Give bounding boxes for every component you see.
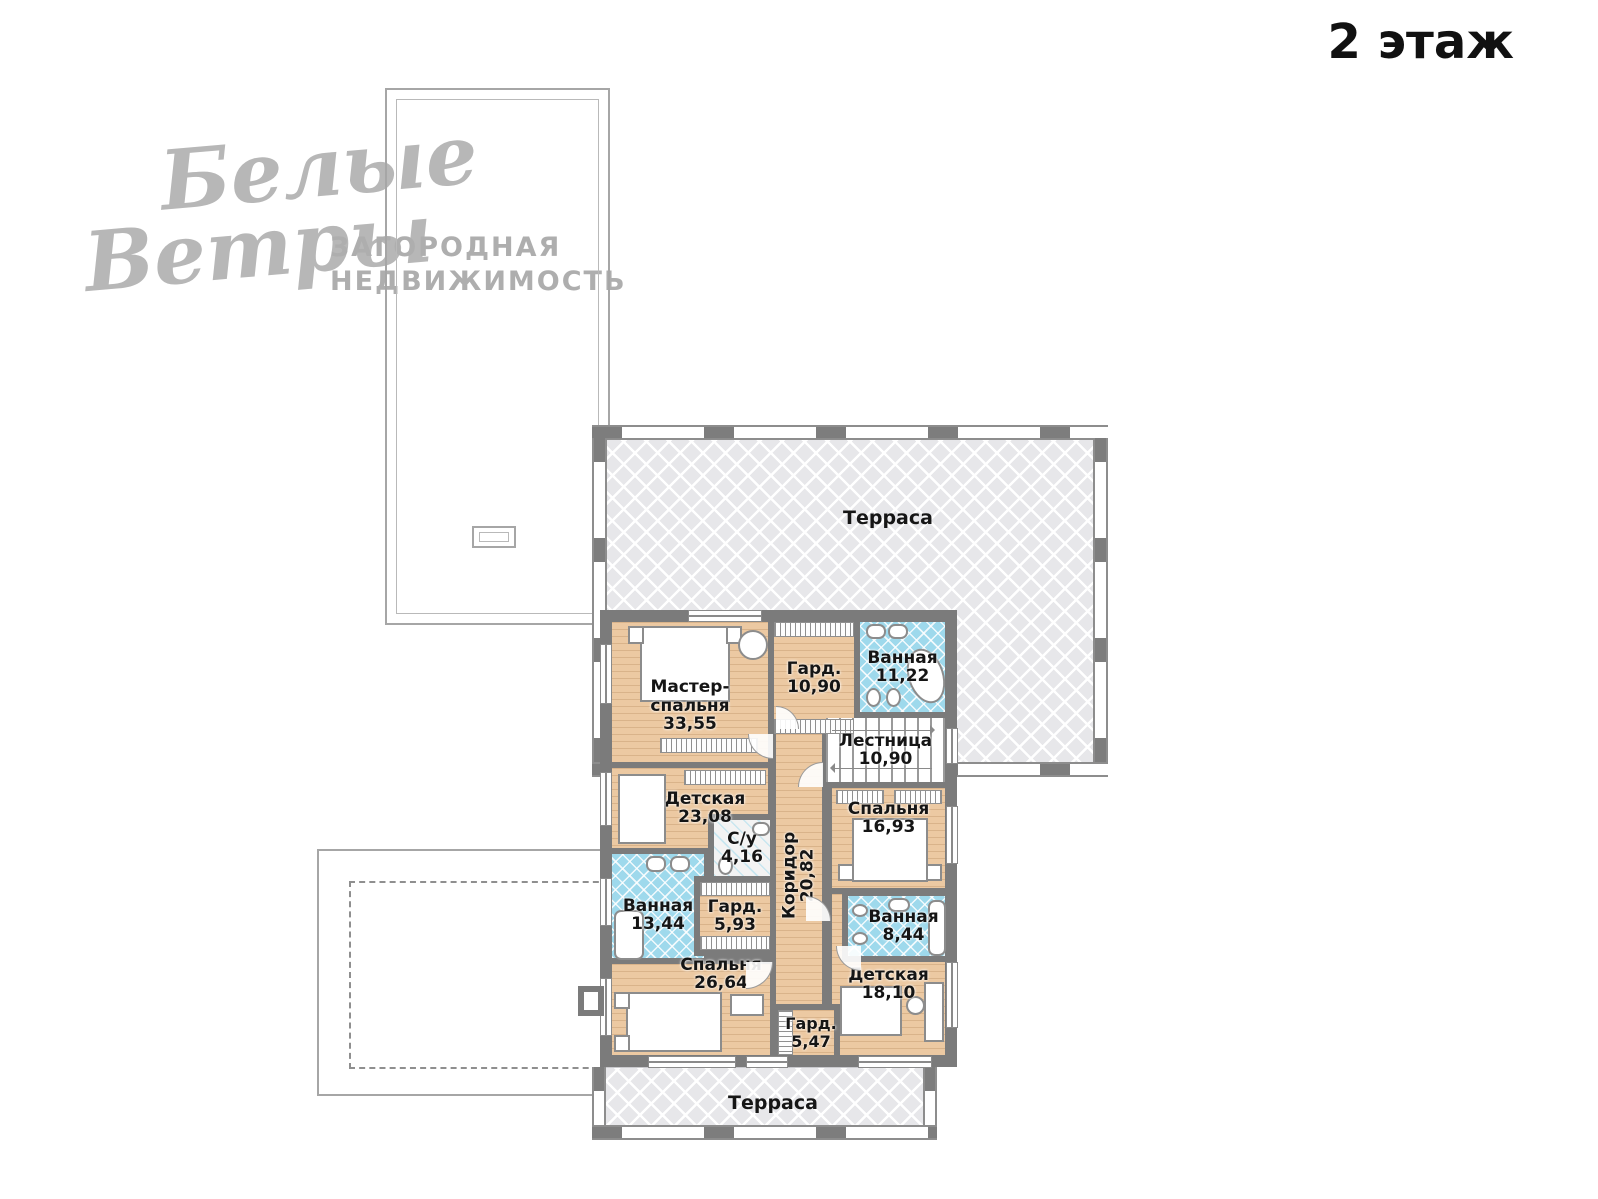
room-bathroom-3: Ванная 8,44	[848, 896, 945, 956]
room-bathroom-2: Ванная 13,44	[612, 854, 704, 958]
room-label: С/у 4,16	[721, 830, 763, 867]
bed-symbol	[618, 774, 666, 844]
terrace-top-railing-east	[1093, 438, 1108, 764]
roof-outline-upper	[385, 88, 610, 625]
wardrobe-shelves-symbol	[700, 882, 770, 896]
room-wc: С/у 4,16	[714, 820, 770, 876]
wardrobe-shelves-symbol	[774, 622, 854, 637]
room-label: Детская 23,08	[665, 790, 746, 827]
room-wardrobe-3: Гард. 5,47	[778, 1010, 834, 1055]
window	[600, 644, 612, 704]
room-bedroom-1: Спальня 16,93	[832, 788, 945, 888]
stairs-arrow-icon	[825, 763, 835, 773]
room-label: Детская 18,10	[848, 966, 929, 1003]
chimney-symbol	[578, 986, 604, 1016]
window	[688, 610, 762, 622]
room-label: Спальня 16,93	[848, 800, 930, 837]
building-footprint: Мастер-спальня 33,55 Гард. 10,90 Ванная …	[600, 610, 957, 1067]
window	[648, 1056, 736, 1068]
nightstand-symbol	[614, 992, 630, 1009]
wardrobe-shelves-symbol	[660, 738, 758, 753]
room-master-bedroom: Мастер-спальня 33,55	[612, 622, 768, 762]
room-bathroom-1: Ванная 11,22	[860, 622, 945, 712]
page-title: 2 этаж	[1327, 14, 1514, 70]
room-wardrobe-2: Гард. 5,93	[700, 882, 770, 950]
bidet-symbol	[886, 688, 901, 707]
room-label: Гард. 5,93	[708, 898, 763, 935]
nightstand-symbol	[614, 1035, 630, 1052]
roof-outline-lower-dashed	[349, 881, 609, 1069]
door-to-terrace	[746, 1056, 788, 1068]
floor-plan-canvas: 2 этаж Белые Ветры ЗАГОРОДНАЯ НЕДВИЖИМОС…	[0, 0, 1598, 1199]
wardrobe-shelves-symbol	[700, 936, 770, 950]
door-arc	[806, 896, 831, 921]
room-label: Мастер-спальня 33,55	[612, 678, 768, 733]
sink-symbol	[888, 624, 908, 639]
door-to-terrace	[946, 728, 958, 764]
bidet-symbol	[852, 932, 868, 945]
wardrobe-shelves-symbol	[684, 770, 766, 785]
window	[600, 878, 612, 926]
room-label: Ванная 11,22	[867, 649, 937, 686]
room-label: Ванная 13,44	[623, 897, 693, 934]
room-label: Гард. 10,90	[787, 660, 842, 697]
terrace-bottom-label: Терраса	[728, 1092, 818, 1114]
bed-symbol	[626, 992, 722, 1052]
nightstand-symbol	[838, 864, 854, 881]
window	[946, 962, 958, 1028]
sink-symbol	[646, 856, 666, 872]
roof-vent-symbol	[472, 526, 516, 548]
room-label: Лестница 10,90	[839, 732, 932, 769]
dresser-symbol	[730, 994, 764, 1016]
window	[600, 772, 612, 826]
terrace-top-railing-north	[592, 425, 1108, 440]
nightstand-symbol	[628, 626, 644, 644]
sink-symbol	[670, 856, 690, 872]
toilet-symbol	[866, 688, 881, 707]
window	[946, 806, 958, 864]
roof-vent-symbol-inner	[479, 532, 509, 542]
terrace-bottom-railing-south	[592, 1125, 937, 1140]
window	[858, 1056, 932, 1068]
nightstand-symbol	[926, 864, 942, 881]
room-label: Ванная 8,44	[868, 908, 938, 945]
sink-symbol	[866, 624, 886, 639]
terrace-top-label: Терраса	[843, 507, 933, 529]
toilet-symbol	[852, 904, 868, 917]
room-label: Гард. 5,47	[785, 1015, 836, 1050]
armchair-symbol	[738, 630, 768, 660]
